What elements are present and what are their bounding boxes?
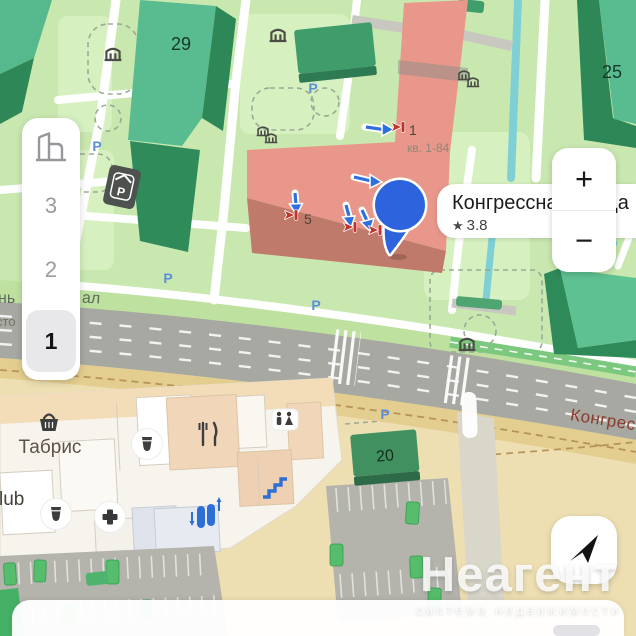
tabris-label[interactable]: Табрис: [19, 437, 82, 458]
building-right-center[interactable]: [544, 268, 636, 358]
entrance-1-number: 1: [409, 122, 417, 138]
bottom-sheet-pill: [553, 625, 600, 636]
floor-button-3[interactable]: 3: [22, 174, 80, 238]
parking-p[interactable]: P: [92, 138, 101, 154]
parking-p[interactable]: P: [380, 406, 389, 422]
building-25[interactable]: 25: [577, 0, 636, 148]
building-icon: [22, 118, 80, 174]
entrance-1-apartments: кв. 1-84: [407, 141, 450, 155]
entrance-5-number: 5: [304, 211, 312, 227]
street-fragment: нь: [0, 290, 15, 307]
rating-value: 3.8: [467, 217, 488, 234]
map-app-screen: 29 25 20 P P P P P: [0, 0, 636, 636]
floor-selector: 3 2 1: [22, 118, 80, 380]
my-location-button[interactable]: [551, 516, 617, 584]
street-fragment: ал: [82, 290, 101, 308]
wc-icon[interactable]: [272, 409, 298, 430]
star-icon: ★: [452, 218, 464, 233]
parking-p[interactable]: P: [311, 297, 320, 313]
floor-button-1-wrap: 1: [22, 302, 80, 380]
building-20-label: 20: [376, 447, 395, 465]
bottom-sheet[interactable]: [12, 600, 624, 636]
zoom-control: + −: [552, 148, 616, 272]
building-flat-center[interactable]: [294, 22, 377, 83]
zoom-out-button[interactable]: −: [552, 210, 616, 273]
building-29-label: 29: [171, 34, 191, 54]
side-crosswalk: [461, 392, 478, 438]
parking-p[interactable]: P: [163, 270, 172, 286]
navigation-arrow-icon: [551, 516, 617, 584]
floor-button-2[interactable]: 2: [22, 238, 80, 302]
parking-p[interactable]: P: [308, 80, 317, 96]
building-20[interactable]: 20: [350, 429, 420, 486]
map-canvas[interactable]: 29 25 20 P P P P P: [0, 0, 636, 636]
club-label-fragment[interactable]: lub: [0, 489, 24, 510]
street-fragment: сто: [0, 314, 16, 329]
floor-button-1-selected[interactable]: 1: [26, 310, 76, 372]
building-25-label: 25: [602, 62, 622, 82]
zoom-in-button[interactable]: +: [552, 148, 616, 210]
